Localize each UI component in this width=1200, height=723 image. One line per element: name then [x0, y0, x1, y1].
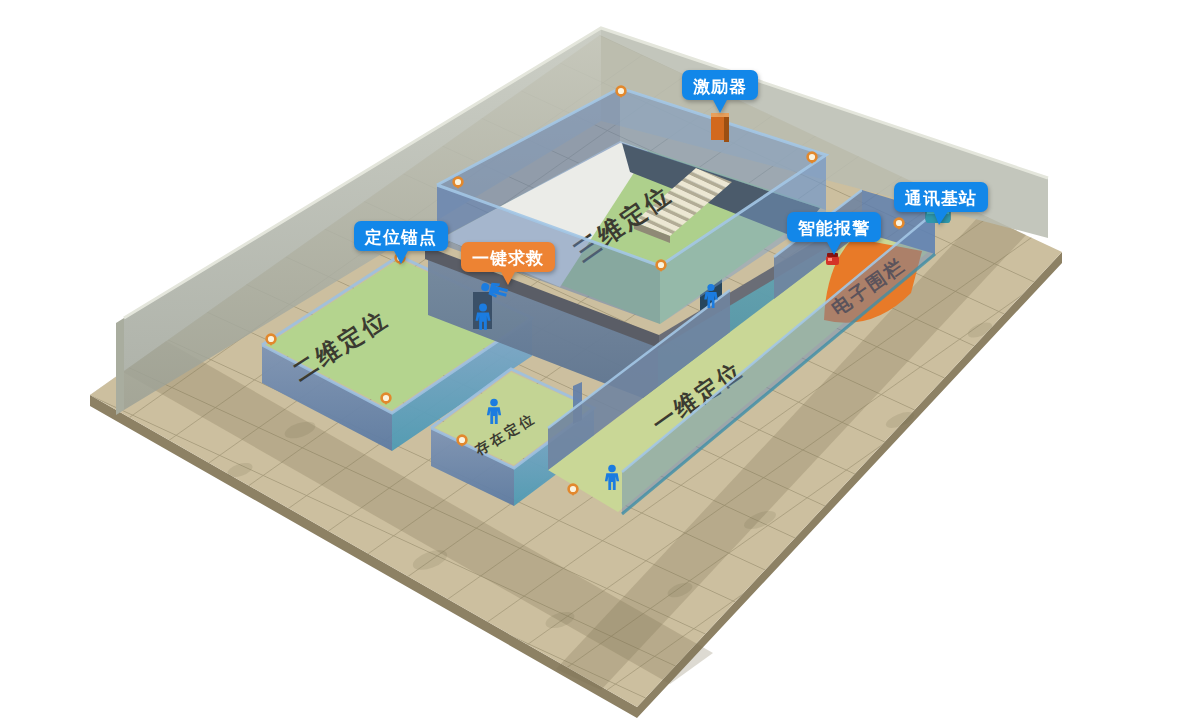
alarm-device	[826, 253, 839, 265]
callout-smart-alarm-label: 智能报警	[797, 219, 870, 238]
exciter-device	[711, 113, 729, 142]
callout-positioning-anchor-label: 定位锚点	[364, 228, 437, 247]
callout-comm-base-station-label: 通讯基站	[904, 189, 977, 208]
scene-root: 二维定位 三维定位	[0, 0, 1200, 723]
callout-exciter-label: 激励器	[693, 77, 747, 96]
callout-sos-label: 一键求救	[472, 249, 544, 268]
isometric-scene: 二维定位 三维定位	[0, 0, 1200, 723]
back-wall-left-end	[116, 318, 124, 415]
